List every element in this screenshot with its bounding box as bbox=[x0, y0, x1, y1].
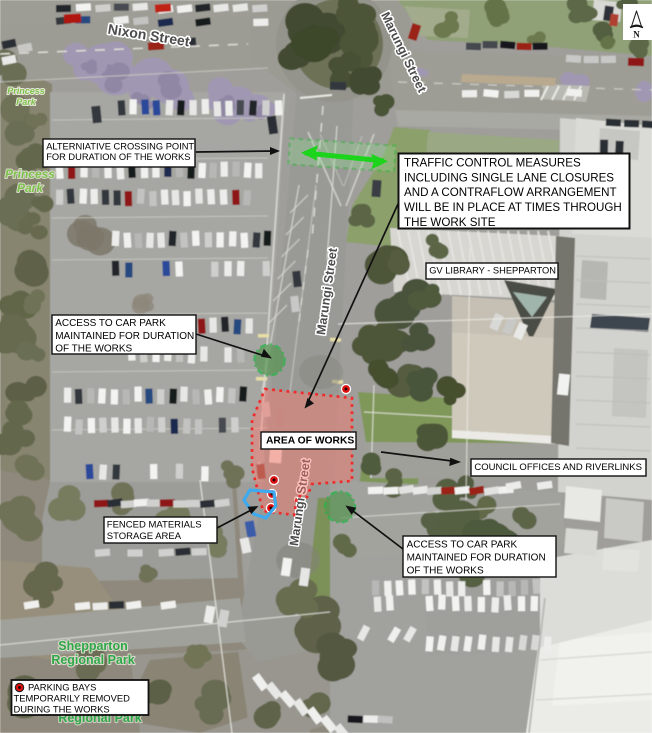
svg-text:OF THE WORKS: OF THE WORKS bbox=[407, 566, 484, 577]
svg-text:TEMPORARILY REMOVED: TEMPORARILY REMOVED bbox=[14, 693, 131, 704]
svg-text:MAINTAINED FOR DURATION: MAINTAINED FOR DURATION bbox=[407, 553, 546, 564]
svg-text:AREA OF WORKS: AREA OF WORKS bbox=[266, 436, 354, 447]
svg-text:DURING THE WORKS: DURING THE WORKS bbox=[14, 704, 110, 715]
svg-text:Princess: Princess bbox=[5, 167, 55, 181]
svg-text:WILL BE IN PLACE AT TIMES THRO: WILL BE IN PLACE AT TIMES THROUGH bbox=[404, 201, 622, 214]
svg-text:INCLUDING SINGLE LANE CLOSURES: INCLUDING SINGLE LANE CLOSURES bbox=[404, 171, 614, 184]
svg-text:GV LIBRARY - SHEPPARTON: GV LIBRARY - SHEPPARTON bbox=[429, 266, 556, 276]
svg-text:PARKING BAYS: PARKING BAYS bbox=[28, 682, 96, 693]
svg-text:TRAFFIC CONTROL MEASURES: TRAFFIC CONTROL MEASURES bbox=[404, 156, 581, 169]
svg-text:Regional Park: Regional Park bbox=[51, 653, 134, 667]
svg-text:Shepparton: Shepparton bbox=[58, 639, 127, 653]
svg-text:THE WORK SITE: THE WORK SITE bbox=[404, 216, 496, 229]
svg-text:Park: Park bbox=[16, 97, 37, 107]
svg-text:N: N bbox=[633, 30, 640, 40]
svg-text:Princess: Princess bbox=[7, 86, 45, 96]
svg-text:STORAGE AREA: STORAGE AREA bbox=[107, 531, 182, 542]
svg-text:MAINTAINED FOR DURATION: MAINTAINED FOR DURATION bbox=[55, 331, 194, 342]
svg-text:FENCED MATERIALS: FENCED MATERIALS bbox=[107, 519, 202, 530]
svg-text:AND A CONTRAFLOW ARRANGEMENT: AND A CONTRAFLOW ARRANGEMENT bbox=[404, 186, 617, 199]
svg-text:OF THE WORKS: OF THE WORKS bbox=[55, 344, 132, 355]
svg-text:ACCESS TO CAR PARK: ACCESS TO CAR PARK bbox=[407, 540, 518, 551]
svg-text:Park: Park bbox=[17, 181, 44, 195]
svg-text:ACCESS TO CAR PARK: ACCESS TO CAR PARK bbox=[55, 318, 166, 329]
svg-text:FOR DURATION OF THE WORKS: FOR DURATION OF THE WORKS bbox=[46, 152, 190, 162]
svg-text:COUNCIL OFFICES AND RIVERLINKS: COUNCIL OFFICES AND RIVERLINKS bbox=[474, 462, 642, 473]
svg-text:ALTERNIATIVE CROSSING POINT: ALTERNIATIVE CROSSING POINT bbox=[46, 142, 194, 152]
